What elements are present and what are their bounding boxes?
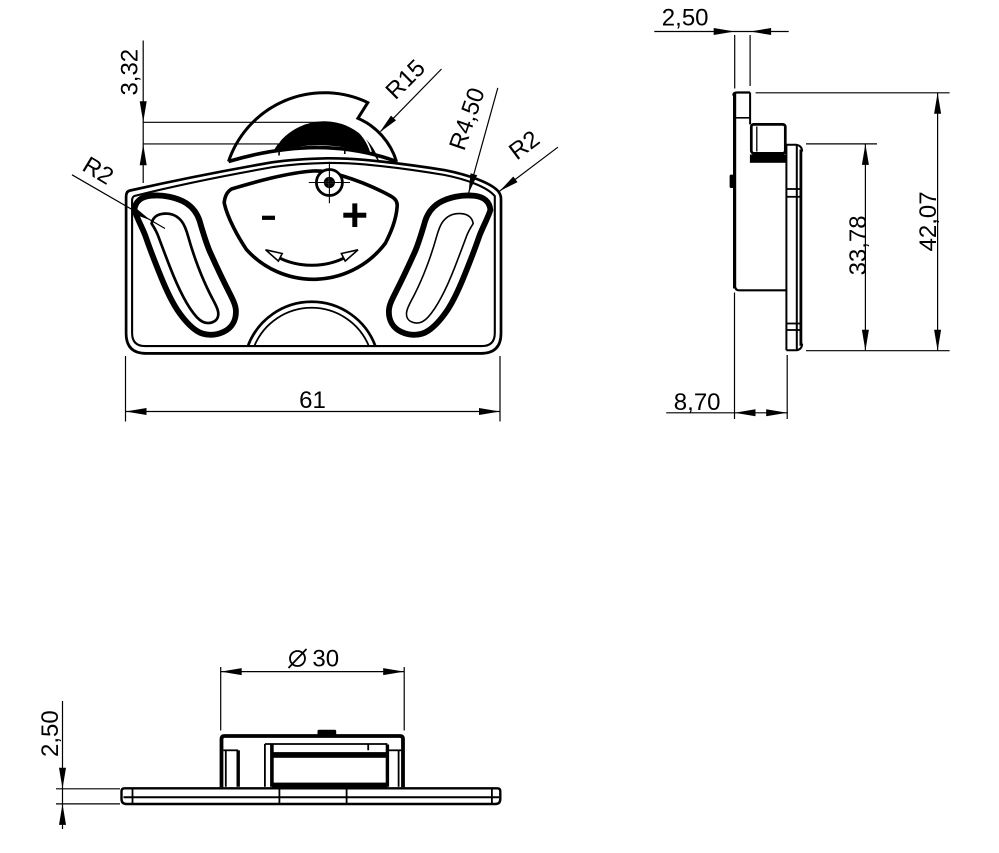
svg-text:8,70: 8,70 — [674, 389, 721, 416]
svg-text:30: 30 — [312, 645, 339, 672]
svg-text:33,78: 33,78 — [845, 215, 872, 275]
svg-text:3,32: 3,32 — [116, 49, 143, 96]
svg-text:42,07: 42,07 — [915, 191, 942, 251]
svg-text:2,50: 2,50 — [37, 710, 64, 757]
svg-text:61: 61 — [299, 387, 326, 414]
svg-text:2,50: 2,50 — [662, 5, 709, 32]
